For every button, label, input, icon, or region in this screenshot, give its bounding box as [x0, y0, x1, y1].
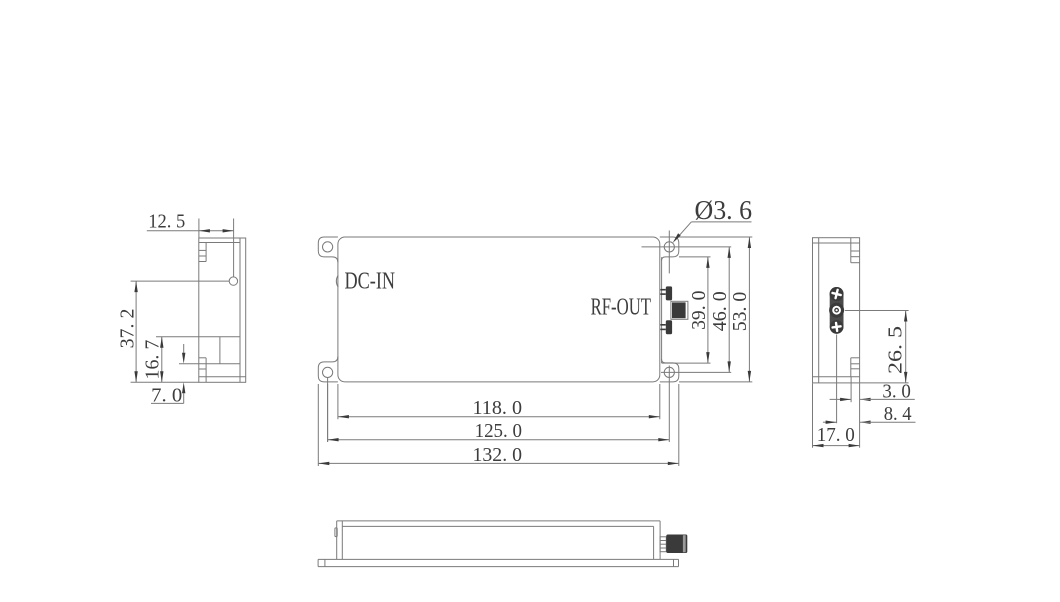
svg-text:RF-OUT: RF-OUT	[591, 294, 652, 320]
svg-text:3. 0: 3. 0	[882, 380, 910, 402]
svg-text:125. 0: 125. 0	[475, 420, 522, 442]
svg-text:118. 0: 118. 0	[473, 397, 523, 419]
svg-text:39. 0: 39. 0	[688, 291, 710, 330]
svg-text:DC-IN: DC-IN	[345, 269, 396, 295]
svg-text:16. 7: 16. 7	[141, 340, 163, 380]
svg-text:53. 0: 53. 0	[729, 292, 751, 331]
svg-text:8. 4: 8. 4	[884, 403, 912, 425]
svg-text:Ø3. 6: Ø3. 6	[695, 195, 753, 225]
svg-text:12. 5: 12. 5	[148, 211, 185, 233]
svg-text:7. 0: 7. 0	[151, 384, 182, 406]
svg-text:26. 5: 26. 5	[885, 326, 907, 374]
svg-text:37. 2: 37. 2	[116, 309, 138, 349]
svg-text:46. 0: 46. 0	[709, 291, 731, 331]
svg-text:17. 0: 17. 0	[817, 424, 855, 446]
svg-text:132. 0: 132. 0	[473, 444, 523, 466]
